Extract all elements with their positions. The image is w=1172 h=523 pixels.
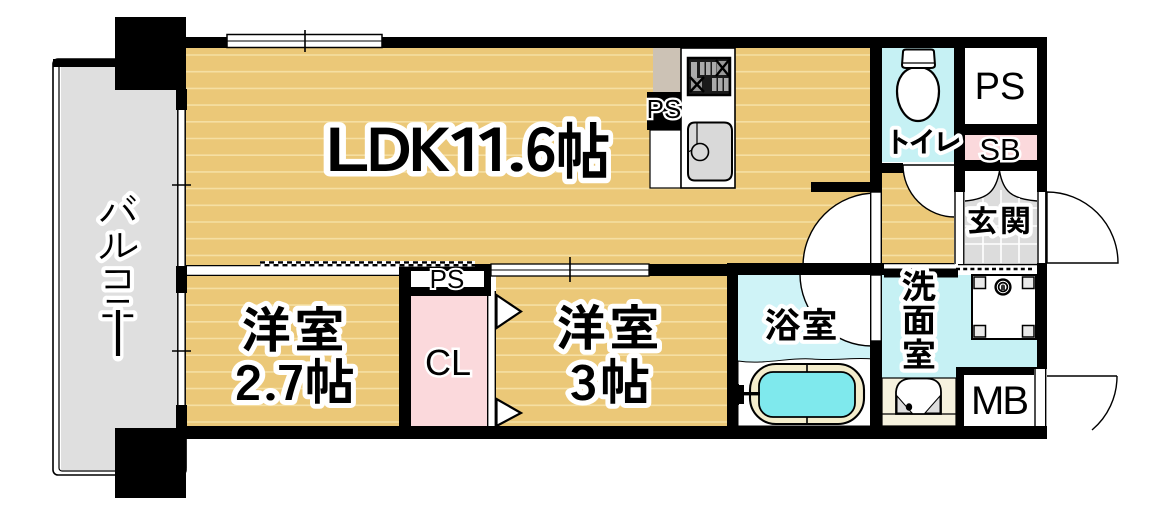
svg-text:PS: PS bbox=[975, 66, 1026, 108]
svg-text:CL: CL bbox=[425, 342, 471, 383]
svg-text:MB: MB bbox=[971, 379, 1027, 423]
svg-text:PS: PS bbox=[647, 94, 682, 124]
svg-text:SB: SB bbox=[979, 132, 1020, 167]
svg-text:PS: PS bbox=[430, 264, 465, 294]
